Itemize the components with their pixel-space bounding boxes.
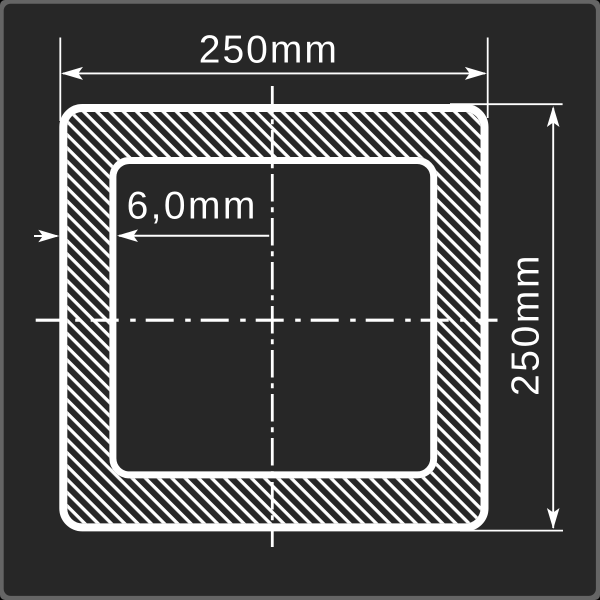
svg-text:250mm: 250mm [505,253,548,396]
svg-text:250mm: 250mm [199,29,339,72]
svg-text:6,0mm: 6,0mm [127,185,258,228]
